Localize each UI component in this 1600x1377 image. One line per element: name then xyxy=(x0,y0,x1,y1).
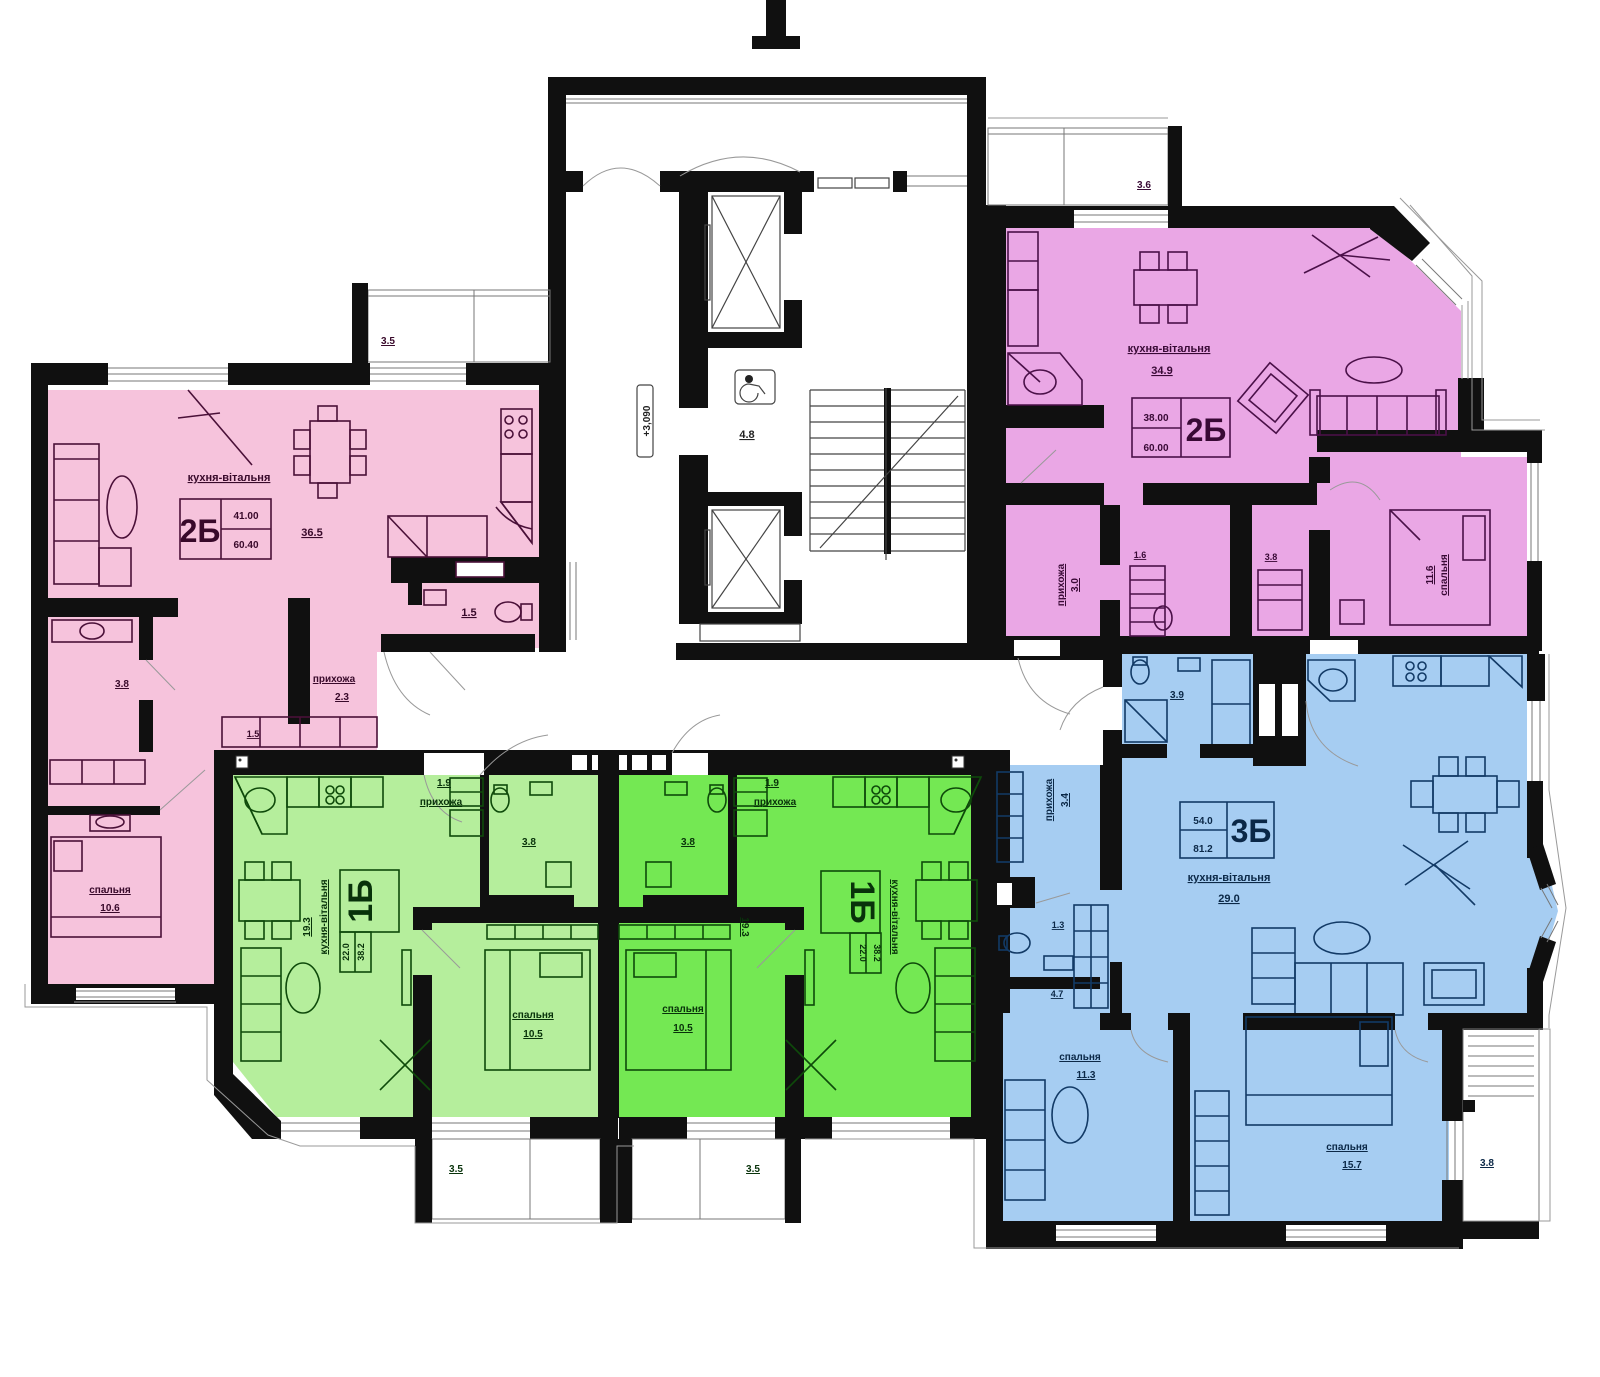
svg-text:38.00: 38.00 xyxy=(1143,413,1168,424)
svg-text:3.4: 3.4 xyxy=(1060,793,1071,807)
svg-text:спальня: спальня xyxy=(512,1010,554,1021)
svg-text:кухня-вітальня: кухня-вітальня xyxy=(889,879,900,954)
svg-text:спальня: спальня xyxy=(89,885,131,896)
svg-text:3.8: 3.8 xyxy=(1265,552,1278,562)
svg-text:3.8: 3.8 xyxy=(1480,1158,1494,1169)
svg-text:+3,090: +3,090 xyxy=(642,405,653,436)
svg-text:1.9: 1.9 xyxy=(437,778,451,789)
svg-text:34.9: 34.9 xyxy=(1151,365,1172,377)
svg-text:спальня: спальня xyxy=(662,1004,704,1015)
svg-text:кухня-вітальня: кухня-вітальня xyxy=(319,879,330,954)
svg-text:1.5: 1.5 xyxy=(461,607,476,619)
svg-text:2.3: 2.3 xyxy=(335,692,349,703)
svg-text:29.0: 29.0 xyxy=(1218,893,1239,905)
svg-text:3.5: 3.5 xyxy=(381,336,395,347)
svg-text:3.8: 3.8 xyxy=(115,679,129,690)
svg-text:прихожа: прихожа xyxy=(1056,563,1067,606)
svg-text:10.6: 10.6 xyxy=(100,903,120,914)
svg-text:3Б: 3Б xyxy=(1231,813,1272,849)
svg-text:11.6: 11.6 xyxy=(1425,565,1436,584)
svg-text:10.5: 10.5 xyxy=(673,1023,693,1034)
svg-text:4.7: 4.7 xyxy=(1051,989,1064,999)
svg-text:1.9: 1.9 xyxy=(765,778,779,789)
svg-text:60.40: 60.40 xyxy=(233,540,258,551)
svg-text:3.9: 3.9 xyxy=(1170,690,1184,701)
svg-text:кухня-вітальня: кухня-вітальня xyxy=(1188,872,1271,884)
svg-text:54.0: 54.0 xyxy=(1193,816,1213,827)
svg-text:прихожа: прихожа xyxy=(754,797,797,808)
svg-text:1.6: 1.6 xyxy=(1134,550,1147,560)
svg-text:19.3: 19.3 xyxy=(739,917,750,937)
svg-text:спальня: спальня xyxy=(1439,554,1450,596)
svg-text:3.8: 3.8 xyxy=(681,837,695,848)
svg-text:3.8: 3.8 xyxy=(522,837,536,848)
svg-text:кухня-вітальня: кухня-вітальня xyxy=(188,472,271,484)
svg-text:1Б: 1Б xyxy=(843,880,881,923)
svg-text:3.0: 3.0 xyxy=(1070,578,1081,592)
svg-text:1.3: 1.3 xyxy=(1052,920,1065,930)
svg-text:1.5: 1.5 xyxy=(247,729,260,739)
svg-text:38.2: 38.2 xyxy=(356,943,366,961)
svg-text:41.00: 41.00 xyxy=(233,511,258,522)
svg-text:10.5: 10.5 xyxy=(523,1029,543,1040)
svg-text:15.7: 15.7 xyxy=(1342,1160,1362,1171)
svg-text:22.0: 22.0 xyxy=(858,944,868,962)
svg-text:4.8: 4.8 xyxy=(739,429,754,441)
svg-text:прихожа: прихожа xyxy=(313,674,356,685)
svg-text:2Б: 2Б xyxy=(180,513,221,549)
svg-text:1Б: 1Б xyxy=(342,879,380,922)
svg-text:11.3: 11.3 xyxy=(1077,1070,1096,1081)
svg-text:спальня: спальня xyxy=(1059,1052,1101,1063)
svg-text:60.00: 60.00 xyxy=(1143,443,1168,454)
svg-text:3.5: 3.5 xyxy=(449,1164,463,1175)
svg-text:спальня: спальня xyxy=(1326,1142,1368,1153)
svg-text:3.6: 3.6 xyxy=(1137,180,1151,191)
svg-text:81.2: 81.2 xyxy=(1193,844,1213,855)
svg-text:прихожа: прихожа xyxy=(420,797,463,808)
svg-text:36.5: 36.5 xyxy=(301,527,322,539)
svg-text:кухня-вітальня: кухня-вітальня xyxy=(1128,343,1211,355)
svg-text:22.0: 22.0 xyxy=(341,943,351,961)
svg-text:19.3: 19.3 xyxy=(302,917,313,937)
svg-text:прихожа: прихожа xyxy=(1044,778,1055,821)
svg-text:38.2: 38.2 xyxy=(872,944,882,962)
svg-text:2Б: 2Б xyxy=(1186,412,1227,448)
svg-text:3.5: 3.5 xyxy=(746,1164,760,1175)
